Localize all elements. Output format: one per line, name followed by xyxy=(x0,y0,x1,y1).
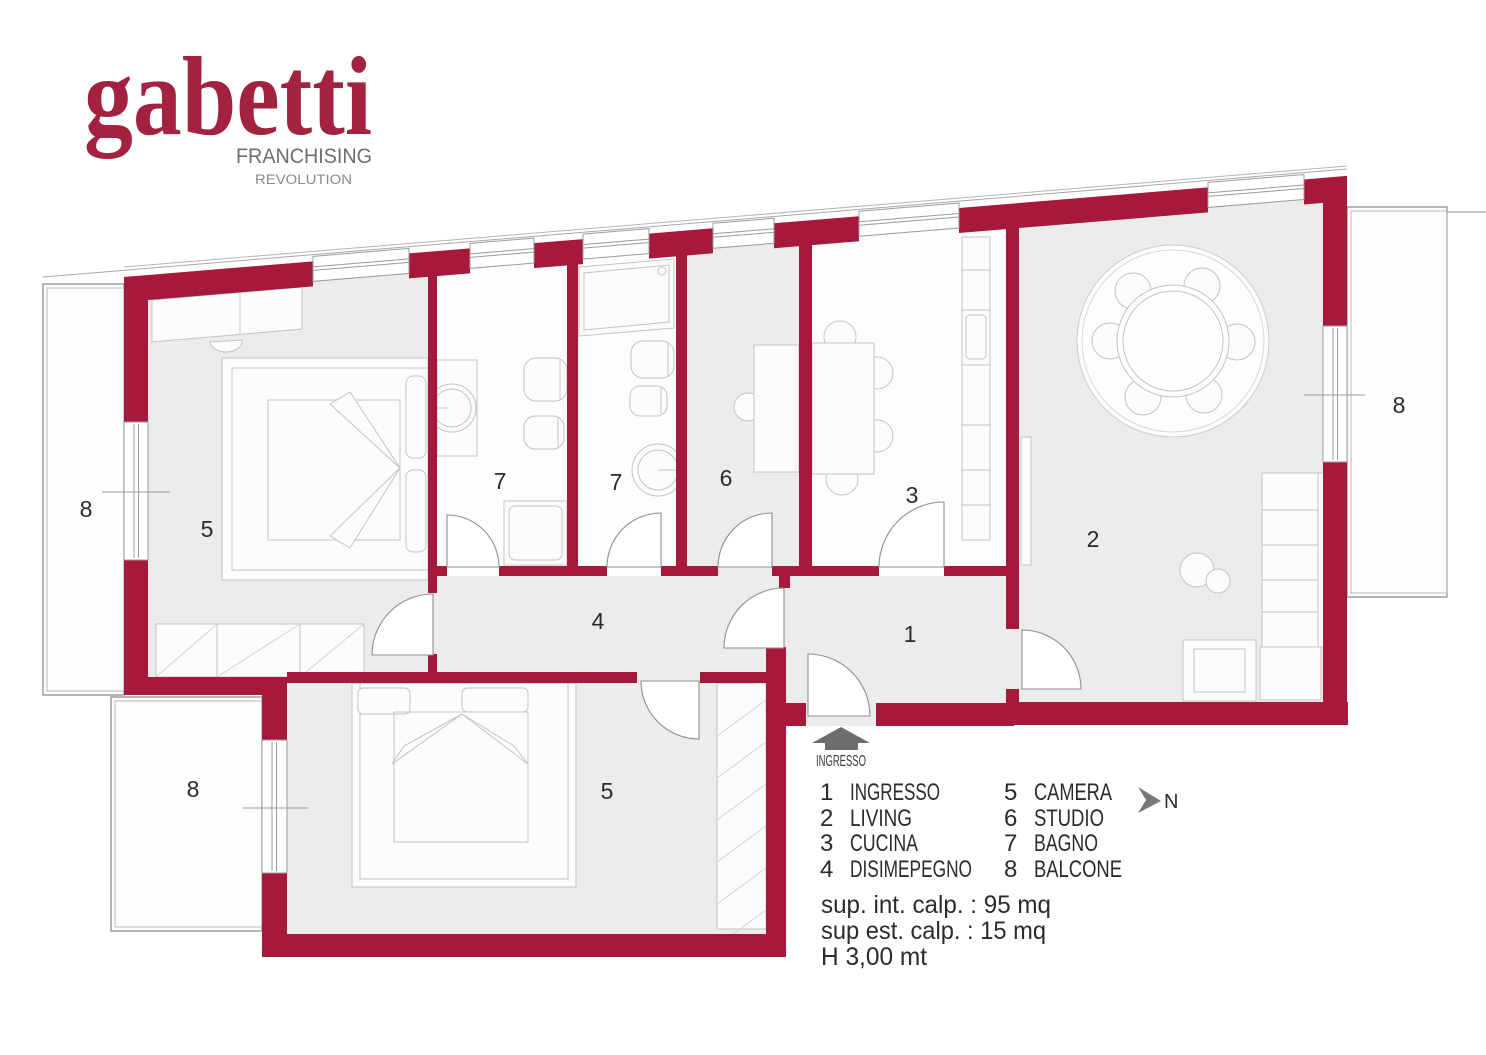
svg-text:8: 8 xyxy=(1004,856,1017,883)
svg-text:8: 8 xyxy=(1393,392,1406,418)
svg-text:8: 8 xyxy=(80,496,93,522)
svg-text:5: 5 xyxy=(601,778,614,804)
svg-text:7: 7 xyxy=(494,468,507,494)
svg-text:3: 3 xyxy=(820,830,833,857)
svg-text:6: 6 xyxy=(1004,805,1017,832)
svg-text:LIVING: LIVING xyxy=(850,805,912,832)
svg-text:FRANCHISING: FRANCHISING xyxy=(236,144,372,168)
svg-text:STUDIO: STUDIO xyxy=(1034,805,1104,832)
svg-text:DISIMEPEGNO: DISIMEPEGNO xyxy=(850,856,972,883)
svg-text:CUCINA: CUCINA xyxy=(850,830,918,857)
svg-text:N: N xyxy=(1164,791,1178,813)
svg-text:H 3,00 mt: H 3,00 mt xyxy=(821,943,927,971)
svg-text:REVOLUTION: REVOLUTION xyxy=(255,172,352,187)
svg-text:gabetti: gabetti xyxy=(84,35,372,159)
svg-text:4: 4 xyxy=(592,608,605,634)
svg-text:5: 5 xyxy=(201,516,214,542)
svg-text:4: 4 xyxy=(820,856,833,883)
svg-text:INGRESSO: INGRESSO xyxy=(850,779,940,806)
svg-text:sup est. calp. : 15 mq: sup est. calp. : 15 mq xyxy=(821,917,1046,945)
svg-text:6: 6 xyxy=(720,465,733,491)
svg-text:CAMERA: CAMERA xyxy=(1034,779,1112,806)
svg-text:INGRESSO: INGRESSO xyxy=(816,753,866,770)
svg-text:3: 3 xyxy=(906,482,919,508)
svg-text:2: 2 xyxy=(820,805,833,832)
svg-text:sup. int. calp. : 95 mq: sup. int. calp. : 95 mq xyxy=(821,891,1051,919)
svg-text:8: 8 xyxy=(187,776,200,802)
svg-text:1: 1 xyxy=(904,621,917,647)
svg-text:BAGNO: BAGNO xyxy=(1034,830,1098,857)
svg-text:1: 1 xyxy=(820,779,833,806)
svg-text:BALCONE: BALCONE xyxy=(1034,856,1122,883)
svg-text:5: 5 xyxy=(1004,779,1017,806)
svg-text:7: 7 xyxy=(1004,830,1017,857)
svg-text:7: 7 xyxy=(610,469,623,495)
svg-text:2: 2 xyxy=(1087,526,1100,552)
